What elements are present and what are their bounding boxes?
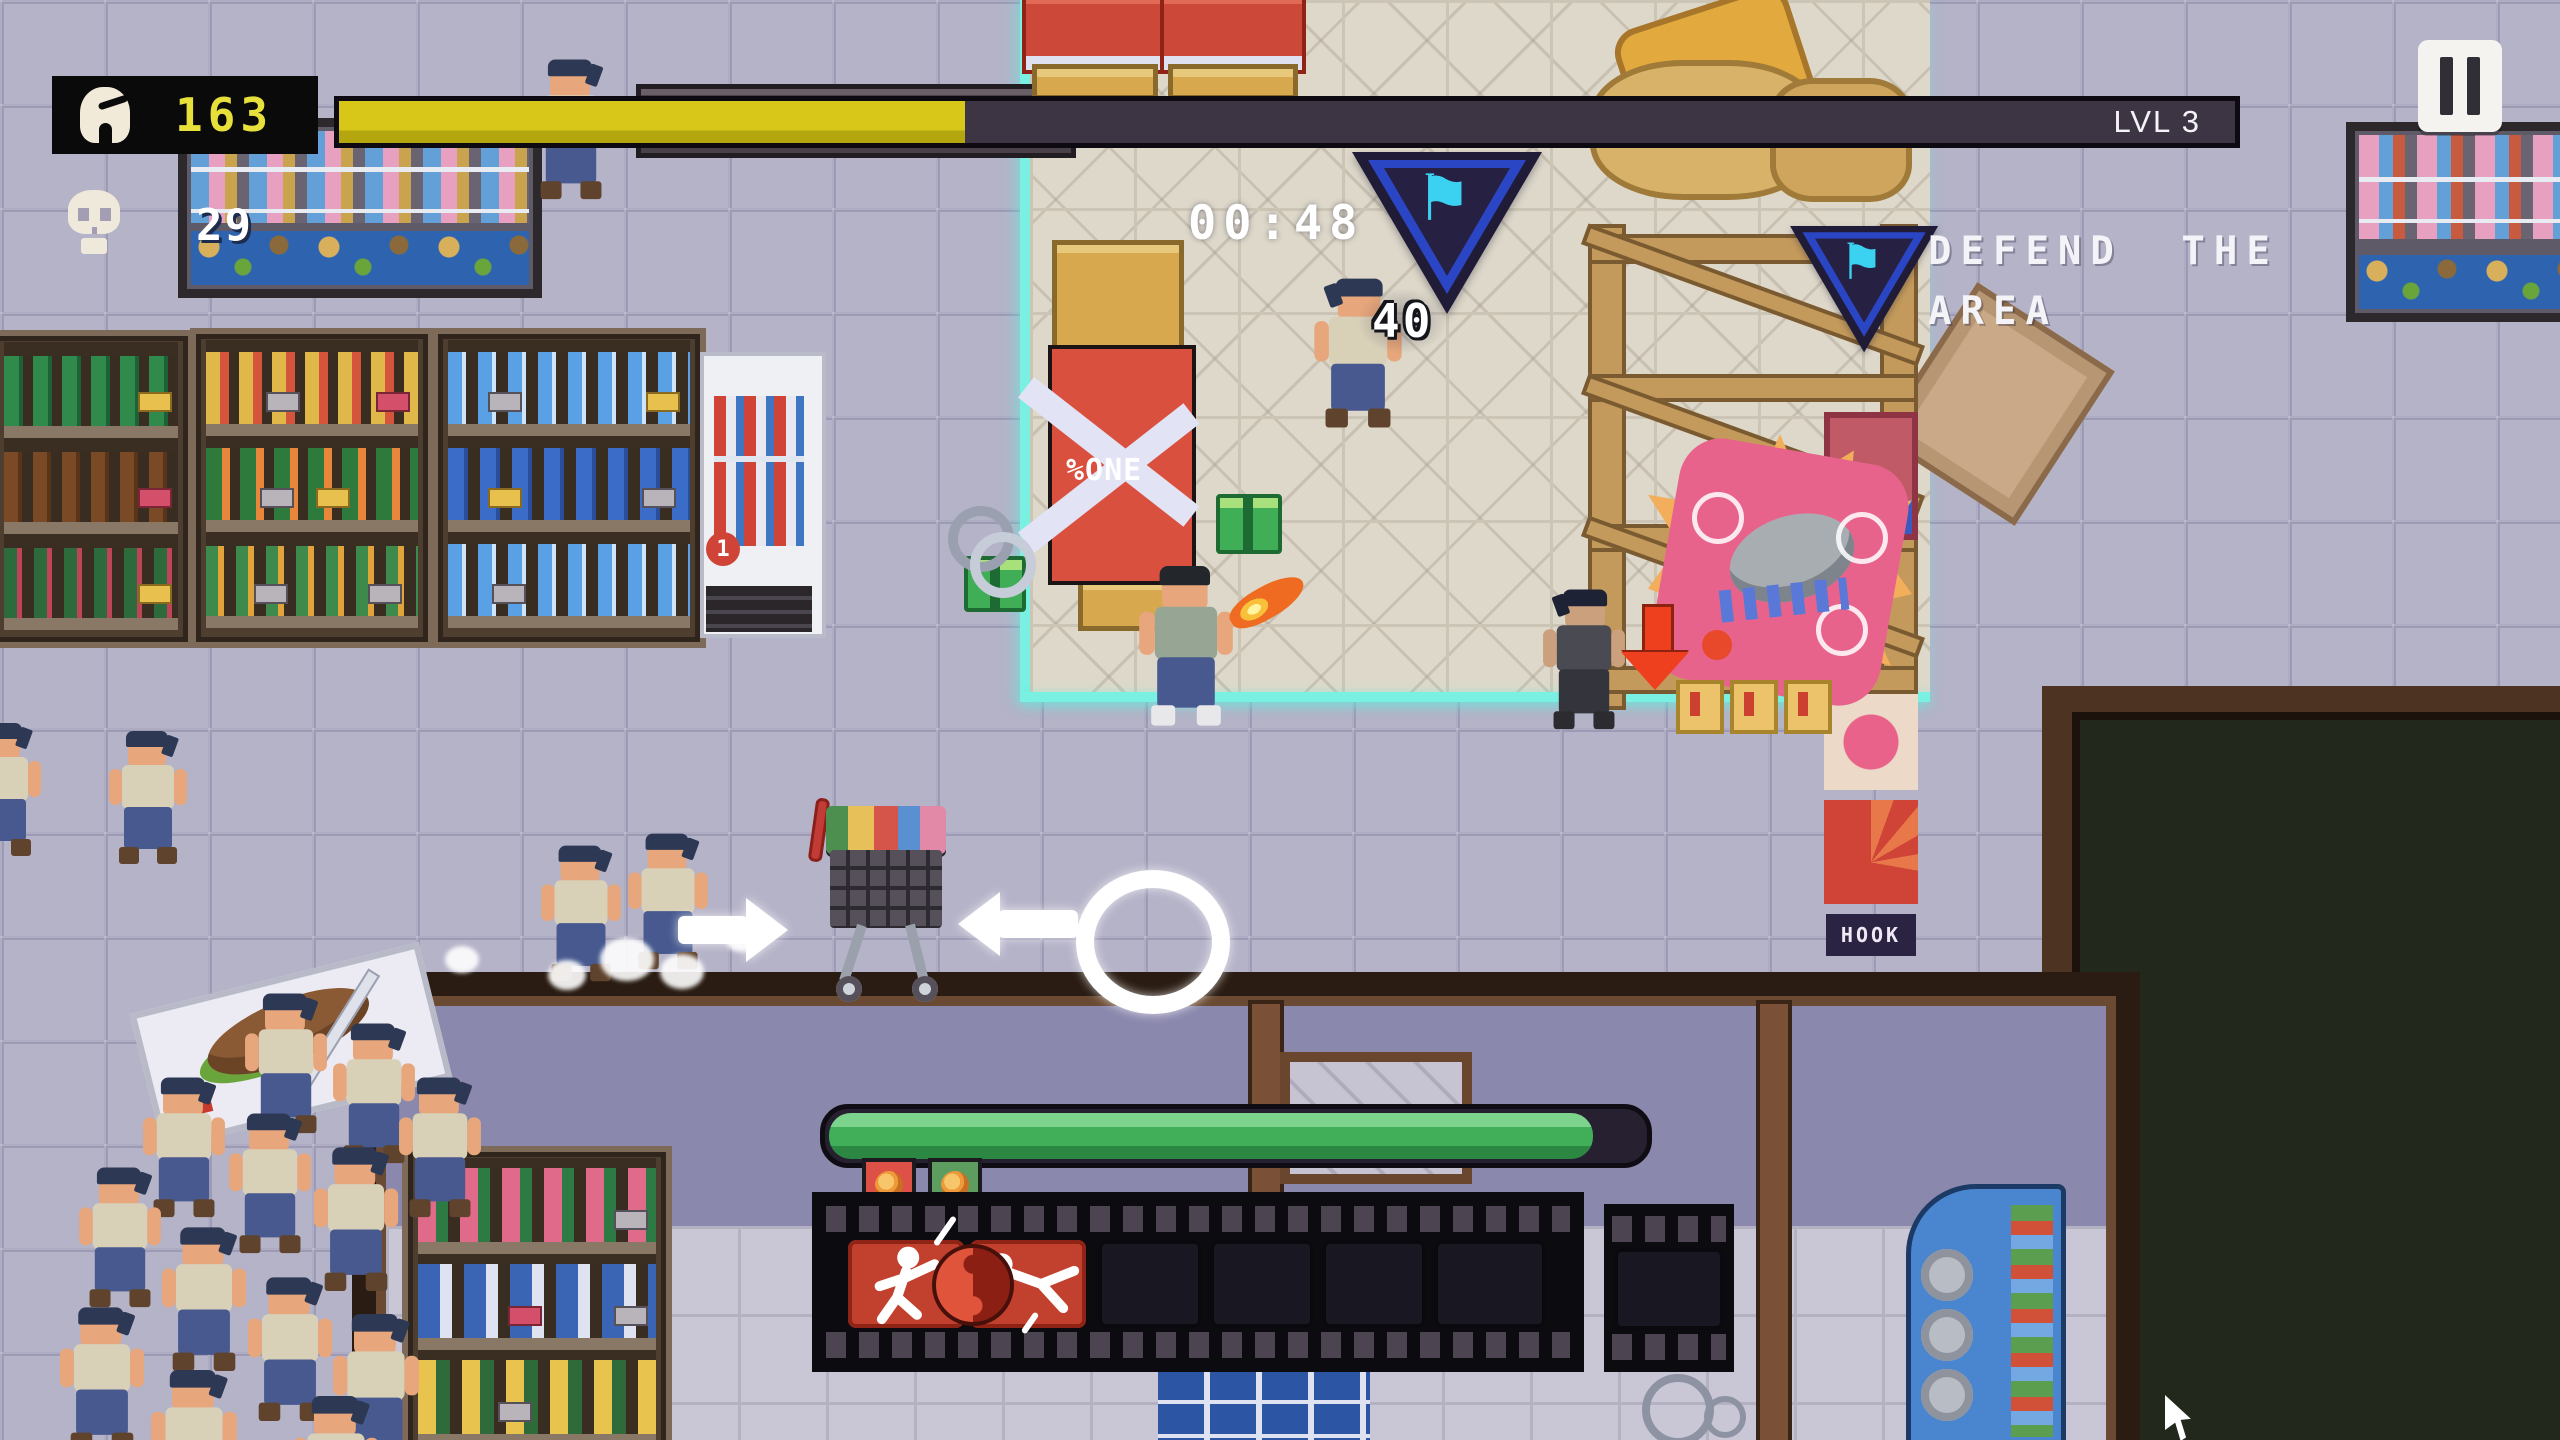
sprite-part [245,1033,259,1071]
sprite-part [243,1149,298,1195]
objective-arrow-left-icon [958,892,1088,956]
combo-frame-empty [1434,1240,1546,1328]
sprite-part [74,1344,130,1392]
sprite-part [99,1173,139,1207]
sprite-part [214,1353,236,1371]
sprite-part [151,1412,165,1440]
pause-icon [2440,57,2453,115]
player-sprite [1143,572,1229,728]
sprite-part [384,1188,398,1227]
sprite-part [334,1153,375,1188]
sprite-part [353,1029,393,1063]
sprite-part [182,1233,223,1268]
smoke-puff [445,946,479,973]
sprite-part [76,1389,128,1434]
sprite-part [608,884,621,921]
damage-popup: 40 [1358,288,1447,354]
sprite-part [415,1157,465,1201]
sprite-part [71,1433,93,1440]
sprite-part [1197,705,1221,725]
sprite-part [1557,625,1612,671]
sprite-part [165,1407,222,1440]
sprite-part [405,1356,419,1396]
teeth-counter-value: 163 [130,88,318,142]
sprite-part [124,807,172,849]
sprite-part [163,1083,203,1117]
sprite-part [109,769,122,805]
sprite-part [333,1356,347,1396]
sprite-part [580,181,601,199]
pickup-progress-fill [829,1113,1593,1159]
smoke-puff [600,938,654,981]
combo-frame-empty [1614,1248,1724,1330]
sprite-part [79,1207,93,1245]
sprite-part [1326,409,1348,428]
enemy-thug-sprite [63,1313,141,1440]
sprite-part [1565,595,1605,629]
cyan-flag-icon: ⚑ [1415,162,1472,236]
sprite-part [122,765,174,809]
sprite-part [410,1199,431,1217]
sprite-part [264,1359,316,1404]
sprite-part [0,799,26,841]
objective-line2: AREA [1928,282,2279,342]
objective-arrow-right-icon [678,898,790,962]
combo-frame-empty [1098,1240,1202,1328]
sprite-part [261,1073,311,1117]
sprite-part [178,1309,230,1354]
sprite-part [128,736,166,768]
sprite-part [467,1117,481,1155]
sprite-part [174,769,187,805]
enemy-thug-sprite [112,736,184,866]
sprite-part [554,880,607,925]
sprite-part [297,1153,311,1191]
sprite-part [366,1273,388,1291]
pause-button[interactable] [2418,40,2502,132]
sprite-part [328,1184,384,1232]
sprite-part [157,847,177,864]
sprite-part [279,1235,300,1253]
sprite-part [1554,711,1575,729]
sprite-part [1151,705,1175,725]
sprite-part [157,1113,212,1159]
teeth-counter-panel: 163 [52,76,318,154]
enemy-thug-sprite [296,1402,375,1440]
objective-instruction: DEFEND THE AREA [1928,222,2279,342]
sprite-part [413,1113,468,1159]
sprite-part [130,1348,144,1387]
sprite-part [1559,669,1609,713]
combo-film-strip-end [1604,1204,1734,1372]
sprite-part [268,1283,309,1318]
sprite-part [11,839,31,856]
film-sprockets [1612,1216,1726,1242]
sprite-part [172,1376,214,1411]
sprite-part [347,1351,404,1399]
sprite-part [1314,321,1329,361]
sprite-part [354,1320,396,1355]
level-label: LVL 3 [2113,101,2201,143]
tooth-icon [80,87,130,143]
enemy-thug-sprite [0,728,38,858]
sprite-part [129,1289,150,1307]
sprite-part [314,1188,328,1227]
sprite-part [112,1433,134,1440]
enemy-thug-sprite [154,1376,233,1440]
xp-fill [339,101,965,143]
sprite-part [561,851,600,884]
sprite-part [147,1207,161,1245]
sprite-part [1593,711,1614,729]
enemy-thug-sprite [402,1083,478,1220]
cyan-flag-icon: ⚑ [1839,234,1884,292]
sprite-part [1162,572,1208,610]
film-sprockets [1612,1334,1726,1360]
sprite-part [262,1314,318,1362]
sprite-part [0,757,28,801]
film-sprockets [826,1206,1570,1232]
kill-counter-value: 29 [196,200,253,251]
sprite-part [648,839,687,872]
sprite-part [541,181,562,199]
objective-line1: DEFEND THE [1928,222,2279,282]
sprite-part [80,1313,121,1348]
sprite-part [1139,612,1155,655]
sprite-part [229,1153,243,1191]
sprite-part [314,1402,356,1437]
enemy-thug-sprite [1546,595,1622,732]
sprite-part [541,884,554,921]
skull-icon [66,190,124,254]
combo-frame-empty [1210,1240,1314,1328]
objective-ring-icon [1076,870,1230,1014]
sprite-part [249,1119,289,1153]
sprite-part [159,1157,209,1201]
sprite-part [60,1348,74,1387]
sprite-part [93,1203,148,1249]
sprite-part [330,1229,382,1274]
objective-timer: 00:48 [1188,196,1364,251]
sprite-part [265,999,305,1033]
sprite-part [1368,409,1390,428]
sprite-part [349,1103,399,1147]
sprite-part [232,1268,246,1307]
sprite-part [28,761,41,797]
sprite-part [193,1199,214,1217]
film-sprockets [826,1332,1570,1358]
enemy-thug-sprite [82,1173,158,1310]
sprite-part [0,728,20,760]
sprite-part [347,1059,402,1105]
enemy-thug-sprite [232,1119,308,1256]
sprite-part [628,872,641,909]
sprite-part [333,1063,347,1101]
sprite-part [399,1117,413,1155]
sprite-part [307,1433,364,1440]
skull-eyes [78,208,89,221]
sprite-part [259,1403,281,1421]
sprite-part [259,1029,314,1075]
sprite-part [245,1193,295,1237]
yin-yang-icon [932,1244,1014,1326]
sprite-part [90,1289,111,1307]
sprite-part [95,1247,145,1291]
enemy-thug-sprite [165,1233,243,1373]
combo-film-strip [812,1192,1584,1372]
sprite-part [223,1412,237,1440]
xp-bar: LVL 3 [334,96,2240,148]
sprite-part [162,1268,176,1307]
game-screen: 1 %ONE HOOK [0,0,2560,1440]
sprite-part [1543,629,1557,667]
enemy-thug-sprite [317,1153,395,1293]
sprite-part [119,847,139,864]
sprite-part [1331,364,1385,411]
sprite-part [550,65,590,99]
combo-frame-empty [1322,1240,1426,1328]
smoke-puff [548,960,586,990]
sprite-part [318,1318,332,1357]
pause-icon [2467,57,2480,115]
sprite-part [173,1353,195,1371]
sprite-part [1155,607,1217,660]
sprite-part [176,1264,232,1312]
sprite-part [419,1083,459,1117]
sprite-part [248,1318,262,1357]
sprite-part [449,1199,470,1217]
sprite-part [313,1033,327,1071]
sprite-part [143,1117,157,1155]
sprite-part [211,1117,225,1155]
sprite-part [1157,657,1215,707]
flag-marker-icon: ⚑ [1790,226,1938,352]
